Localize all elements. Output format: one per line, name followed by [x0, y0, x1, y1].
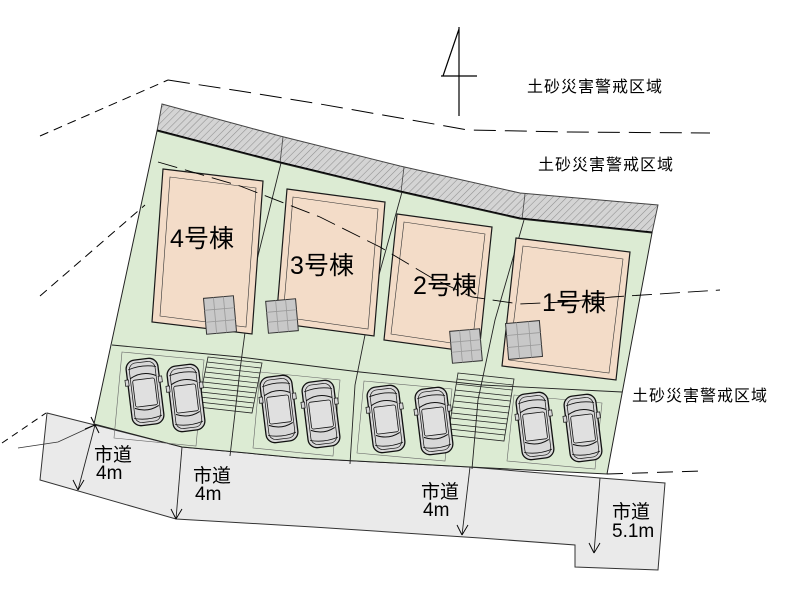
site-plan-page: 土砂災害警戒区域 土砂災害警戒区域 土砂災害警戒区域 4号棟 3号棟 2号棟 1…: [0, 0, 800, 600]
site-plan-canvas: 土砂災害警戒区域 土砂災害警戒区域 土砂災害警戒区域 4号棟 3号棟 2号棟 1…: [0, 0, 800, 600]
road-label-width: 4m: [423, 500, 449, 521]
terrace-grid: [450, 329, 483, 363]
road-label-width: 4m: [96, 463, 122, 484]
building-4-label: 4号棟: [170, 225, 234, 253]
warning-zone-label-middle: 土砂災害警戒区域: [538, 156, 674, 174]
north-arrow-icon: [441, 27, 477, 116]
road-label-width: 5.1m: [612, 521, 654, 542]
road-edge-dashed-line: [2, 413, 46, 443]
road-label: 市道 5.1m: [612, 501, 654, 542]
road-label-name: 市道: [612, 501, 650, 523]
road-label-width: 4m: [195, 484, 221, 505]
building-1-label: 1号棟: [542, 289, 606, 317]
terrace-grid: [266, 299, 299, 333]
boundary-dashed-line: [607, 471, 702, 474]
terrace-grid: [203, 296, 236, 334]
boundary-dashed-line: [40, 80, 168, 136]
terrace-grid: [505, 321, 542, 360]
warning-zone-label-top: 土砂災害警戒区域: [527, 78, 663, 96]
warning-zone-label-right: 土砂災害警戒区域: [632, 387, 768, 405]
building-2-label: 2号棟: [413, 272, 477, 300]
building-3-label: 3号棟: [290, 252, 354, 280]
